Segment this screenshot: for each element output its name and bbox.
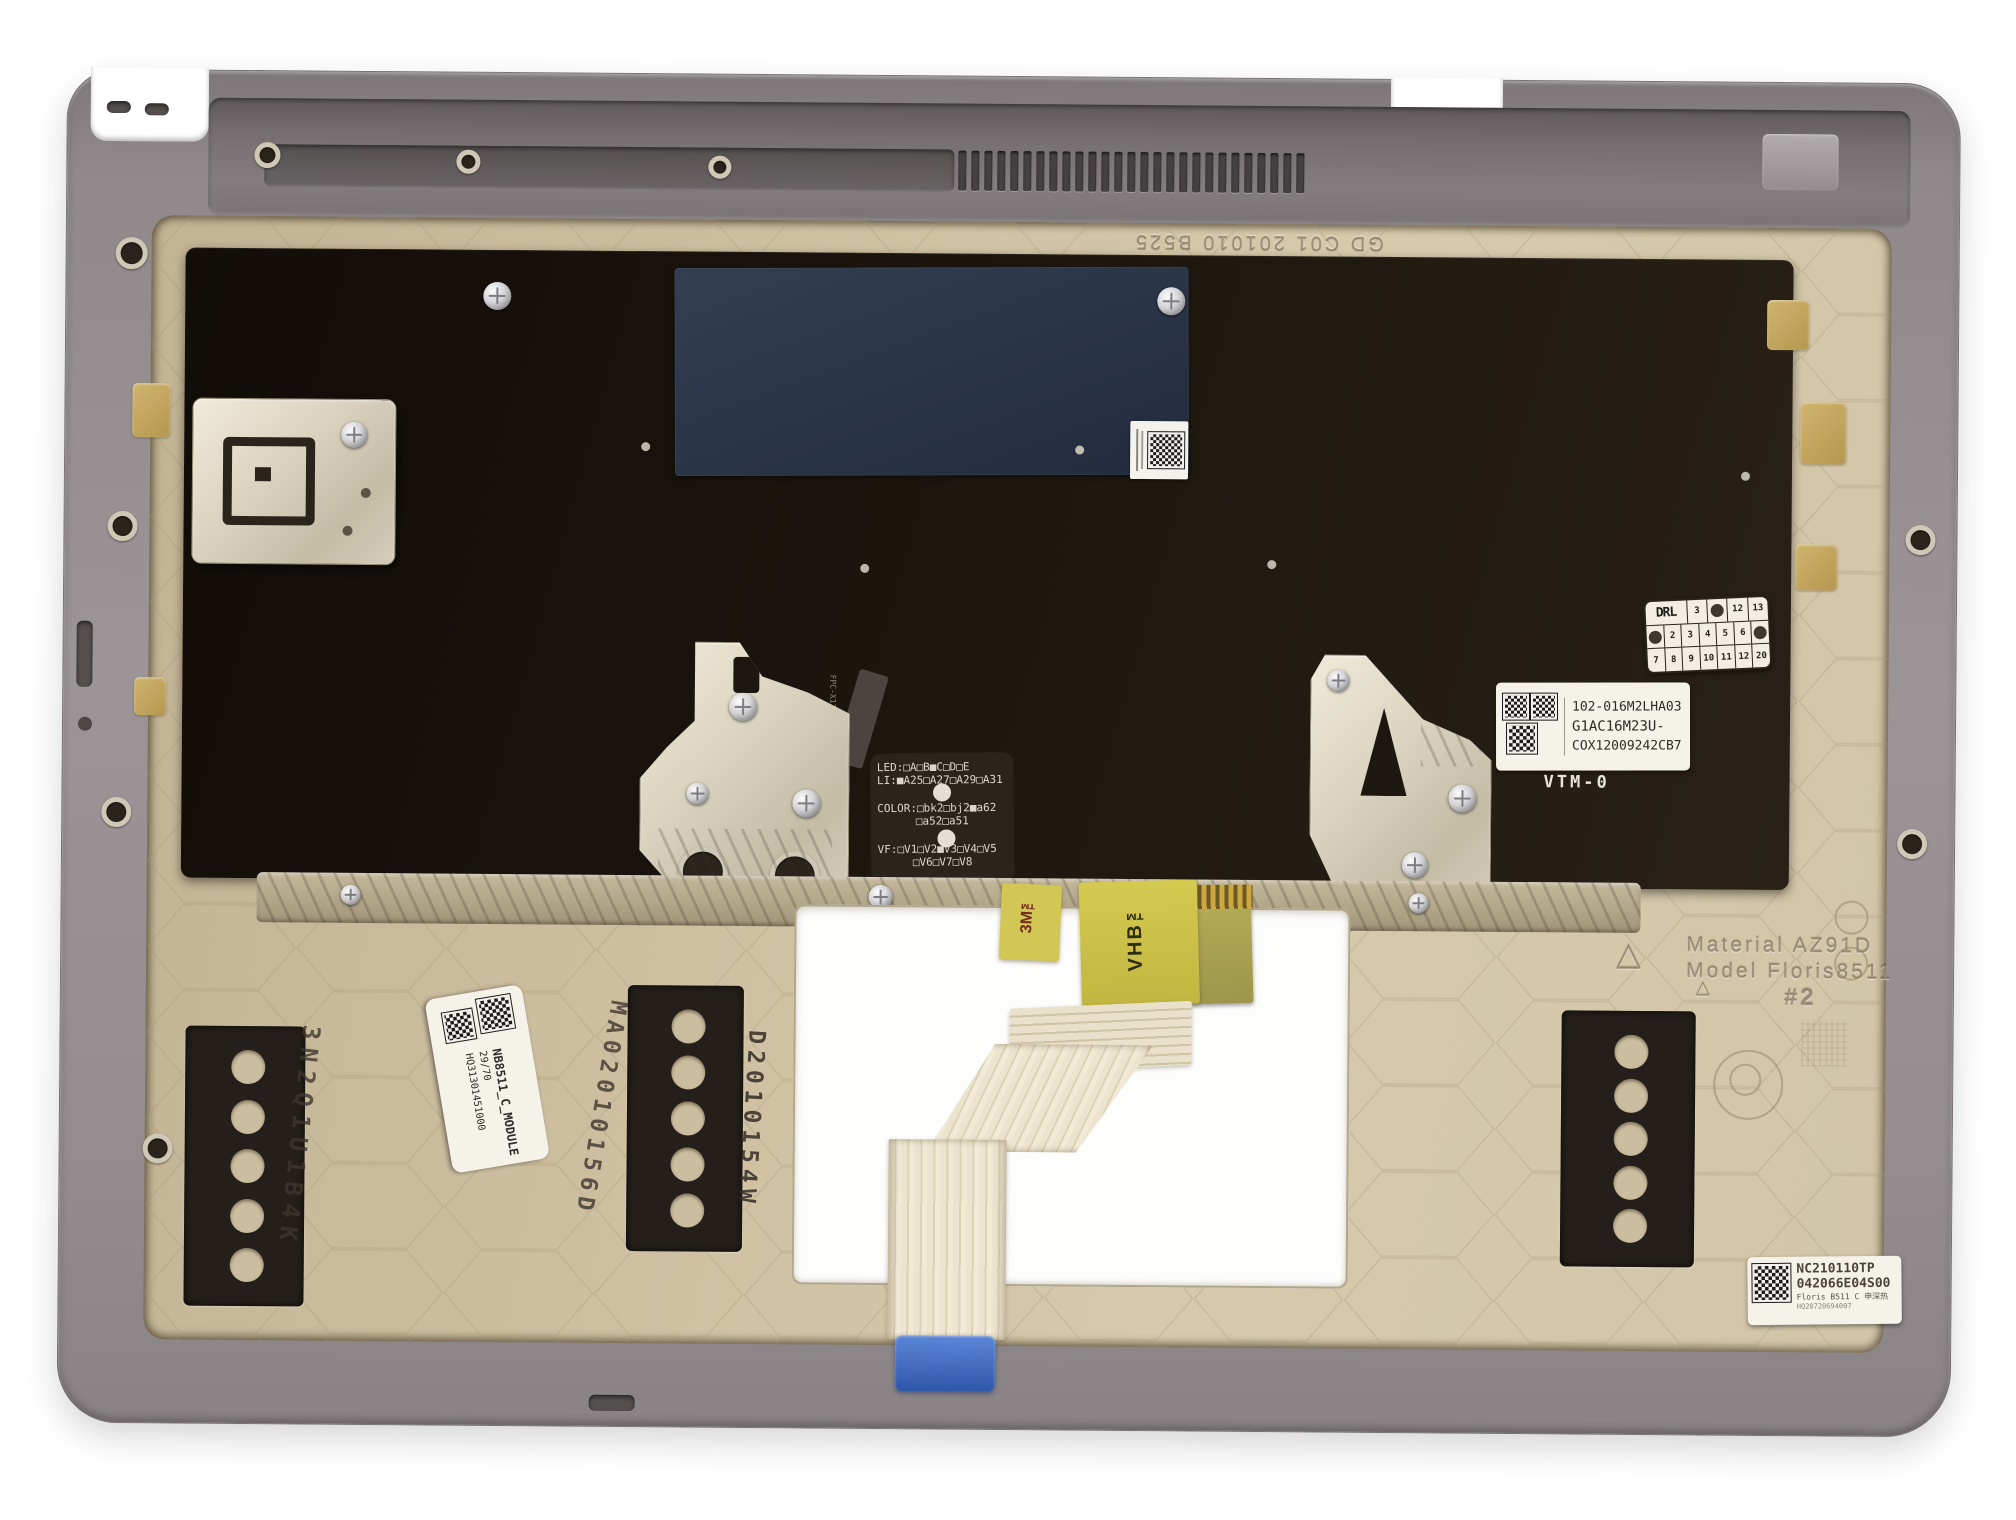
tape-3m: 3M™ [999, 883, 1062, 961]
tape-3m-text: 3M™ [1018, 894, 1038, 934]
serial-label-text: NC210110TP 042066E04S00 Floris B511 C 申深… [1796, 1261, 1890, 1320]
matrix-cell: 3 [1687, 599, 1708, 623]
screw-hole-dot [641, 442, 650, 451]
matrix-cell: DRL [1645, 600, 1688, 625]
vent-slot [1114, 152, 1122, 192]
screw-boss [1905, 525, 1935, 555]
felt-pad [134, 677, 166, 715]
rim-vent [145, 103, 169, 115]
screw [1448, 784, 1476, 812]
foam-pad-hole [1614, 1035, 1648, 1069]
vent-slot [1049, 151, 1057, 191]
serial-line: NC210110TP [1796, 1261, 1890, 1277]
vtm-marking: VTM-0 [1543, 772, 1609, 793]
screw-boss [116, 237, 148, 269]
screw [1327, 670, 1349, 692]
vent-slot [984, 151, 992, 191]
module-label-text: NB8511_C_MODULE 29/70 HQ31301451000 [461, 1047, 522, 1161]
recycle-triangle-icon: △ [1616, 935, 1644, 973]
vent-slot [1231, 153, 1239, 193]
ribbon-blue-pull-tab [895, 1335, 995, 1392]
matrix-cell: 11 [1718, 646, 1737, 669]
led-spec-patch: LED:□A□B■C□D□E LI:■A25□A27□A29□A31 COLOR… [871, 753, 1014, 882]
led-spec-line: □V6□V7□V8 [878, 855, 1008, 869]
vent-slot [958, 151, 966, 191]
rail-screw-boss [708, 156, 731, 179]
led-spec-line: □a52□a51 [877, 814, 1007, 828]
foam-pad-hole [671, 1101, 705, 1135]
mold-swirl-stamp [1713, 1050, 1784, 1121]
vent-slot [1179, 152, 1187, 192]
matrix-cell: 5 [1717, 622, 1736, 645]
matrix-row: 7 8 9 10 11 12 20 [1647, 644, 1770, 672]
matrix-punch-hole [1646, 625, 1665, 648]
bracket-hole [342, 526, 352, 536]
matrix-cell: 2 [1664, 624, 1683, 647]
screw [1157, 287, 1185, 315]
part-number-line: 102-016M2LHA03 [1572, 698, 1682, 717]
foam-pad-hole [1614, 1122, 1648, 1156]
mold-date-emboss: GD C01 201010 B525 [1024, 228, 1384, 254]
rim-vent [107, 101, 131, 113]
screw [1402, 852, 1428, 878]
screw-hole-dot [1267, 560, 1276, 569]
vent-slot [1192, 152, 1200, 192]
rim-slot [76, 621, 93, 687]
rail-channel [264, 144, 954, 191]
foam-pad-hole [670, 1193, 704, 1227]
micro-text [1141, 431, 1143, 469]
vent-slot [1010, 151, 1018, 191]
foam-pad-hole [1613, 1209, 1647, 1243]
matrix-punch-hole [1752, 620, 1770, 643]
screw [483, 282, 511, 310]
matrix-punch-hole [1707, 599, 1728, 623]
matrix-cell: 8 [1665, 648, 1684, 671]
vent-slot [1296, 153, 1304, 193]
mold-date-stamp [1834, 946, 1868, 980]
vent-slot [1153, 152, 1161, 192]
serial-line: HQ20720694007 [1797, 1302, 1891, 1312]
felt-pad [1800, 402, 1846, 464]
recycle-triangle-icon: △ [1696, 977, 1713, 998]
mold-date-stamp [1834, 900, 1868, 934]
part-number-label: 102-016M2LHA03 G1AC16M23U- COX12009242CB… [1496, 683, 1690, 771]
serial-line: 042066E04S00 [1796, 1276, 1890, 1292]
part-number-text: 102-016M2LHA03 G1AC16M23U- COX12009242CB… [1564, 698, 1682, 756]
vent-slot [1140, 152, 1148, 192]
serial-line: Floris B511 C 申深热 [1797, 1291, 1891, 1303]
vent-slot [1088, 152, 1096, 192]
foam-pad-hole [671, 1055, 705, 1089]
qr-code-icon [442, 1009, 477, 1044]
bracket-hole [361, 488, 371, 498]
vent-slot [1244, 153, 1252, 193]
felt-pad [132, 383, 170, 437]
part-number-line: COX12009242CB7 [1572, 737, 1682, 756]
vent-slot [1270, 153, 1278, 193]
felt-pad [1795, 544, 1837, 590]
screw [1409, 893, 1429, 913]
screw [792, 789, 820, 817]
matrix-cell: 4 [1699, 623, 1718, 646]
foam-pad-hole [230, 1198, 264, 1232]
vent-slot [1075, 152, 1083, 192]
palmrest-assembly: GD C01 201010 B525 FPC-X11 LED:□A□B■C□D□… [0, 0, 2016, 1520]
matrix-cell: 3 [1681, 624, 1700, 647]
matrix-cell: 12 [1727, 598, 1748, 622]
matrix-cell: 13 [1748, 597, 1768, 621]
mold-grid-stamp [1801, 1020, 1847, 1066]
vent-slot [1257, 153, 1265, 193]
sticker-corner-label [1130, 421, 1188, 479]
bracket-triangle-cutout [1350, 708, 1417, 797]
qr-code-icon [1531, 694, 1557, 720]
foam-pad-hole [671, 1009, 705, 1043]
bracket-cutout-center [255, 467, 271, 481]
rim-hole [78, 717, 92, 731]
qr-code-icon [1752, 1264, 1790, 1302]
matrix-cell: 7 [1647, 649, 1666, 672]
led-spec-line: LED:□A□B■C□D□E [877, 760, 1007, 774]
vent-slot [1101, 152, 1109, 192]
vent-slot-row [958, 148, 1318, 197]
screw-hole-dot [860, 564, 869, 573]
matrix-cell: 10 [1700, 646, 1719, 669]
bracket-left [191, 398, 396, 566]
ribbon-cable [887, 1139, 1007, 1340]
qr-code-block [434, 993, 520, 1051]
screw [729, 693, 757, 721]
qr-code-icon [476, 994, 515, 1033]
matrix-test-label: DRL 3 12 13 2 3 4 5 6 7 8 9 10 11 12 20 [1643, 595, 1772, 675]
serial-label: NC210110TP 042066E04S00 Floris B511 C 申深… [1747, 1256, 1902, 1325]
tape-vhb: VHB™ [1079, 879, 1200, 1006]
screw [341, 422, 367, 448]
micro-text [1136, 429, 1138, 471]
led-spec-line: COLOR:□bk2□bj2■a62 [877, 801, 1007, 815]
vent-slot [997, 151, 1005, 191]
foam-pad-hole [230, 1248, 264, 1282]
mold-swirl-inner [1729, 1064, 1761, 1096]
matrix-cell: 12 [1735, 645, 1754, 668]
qr-code-icon [1148, 432, 1184, 468]
top-rail [208, 98, 1911, 229]
qr-code-block [1503, 692, 1557, 762]
matrix-cell: 9 [1682, 647, 1701, 670]
screw-hole-dot [1741, 472, 1750, 481]
screw-boss [1897, 829, 1927, 859]
vent-slot [1218, 153, 1226, 193]
vent-slot [1023, 151, 1031, 191]
foam-pad-hole [231, 1050, 265, 1084]
foam-pad-hole [1614, 1078, 1648, 1112]
rail-screw-boss [456, 150, 480, 174]
matrix-cell: 6 [1734, 621, 1753, 644]
vent-slot [1205, 153, 1213, 193]
vent-slot [971, 151, 979, 191]
screw-boss [143, 1133, 173, 1163]
vent-slot [1062, 151, 1070, 191]
bottom-notch [589, 1395, 635, 1411]
qr-code-icon [1507, 724, 1537, 754]
foam-pad-hole [1613, 1165, 1647, 1199]
part-number-line: G1AC16M23U- [1572, 717, 1682, 737]
qr-code-icon [1503, 694, 1529, 720]
foam-pad-right [1560, 1010, 1696, 1267]
mylar-sticker [675, 267, 1190, 476]
vent-slot [1283, 153, 1291, 193]
felt-pad [1767, 300, 1809, 350]
foam-pad-hole [231, 1099, 265, 1133]
screw [341, 885, 361, 905]
vent-slot [1166, 152, 1174, 192]
tape-vhb-text: VHB™ [1123, 899, 1148, 972]
rail-screw-boss [254, 142, 280, 168]
photo-stage: GD C01 201010 B525 FPC-X11 LED:□A□B■C□D□… [0, 0, 2016, 1512]
alignment-dot [933, 783, 951, 801]
foam-pad-hole [230, 1149, 264, 1183]
vent-slot [1036, 151, 1044, 191]
alignment-dot [937, 829, 955, 847]
screw [686, 782, 708, 804]
screw-boss [107, 511, 137, 541]
vent-slot [1127, 152, 1135, 192]
rail-latch-tab [1762, 134, 1838, 191]
screw-boss [101, 797, 131, 827]
fpc-tail-text: FPC-X11 [828, 675, 837, 709]
matrix-cell: 20 [1753, 644, 1771, 667]
mold-cavity-number: #2 [1784, 984, 1817, 1012]
screw-hole-dot [1075, 446, 1084, 455]
foam-pad-hole [670, 1147, 704, 1181]
foam-pad-center [626, 985, 744, 1252]
